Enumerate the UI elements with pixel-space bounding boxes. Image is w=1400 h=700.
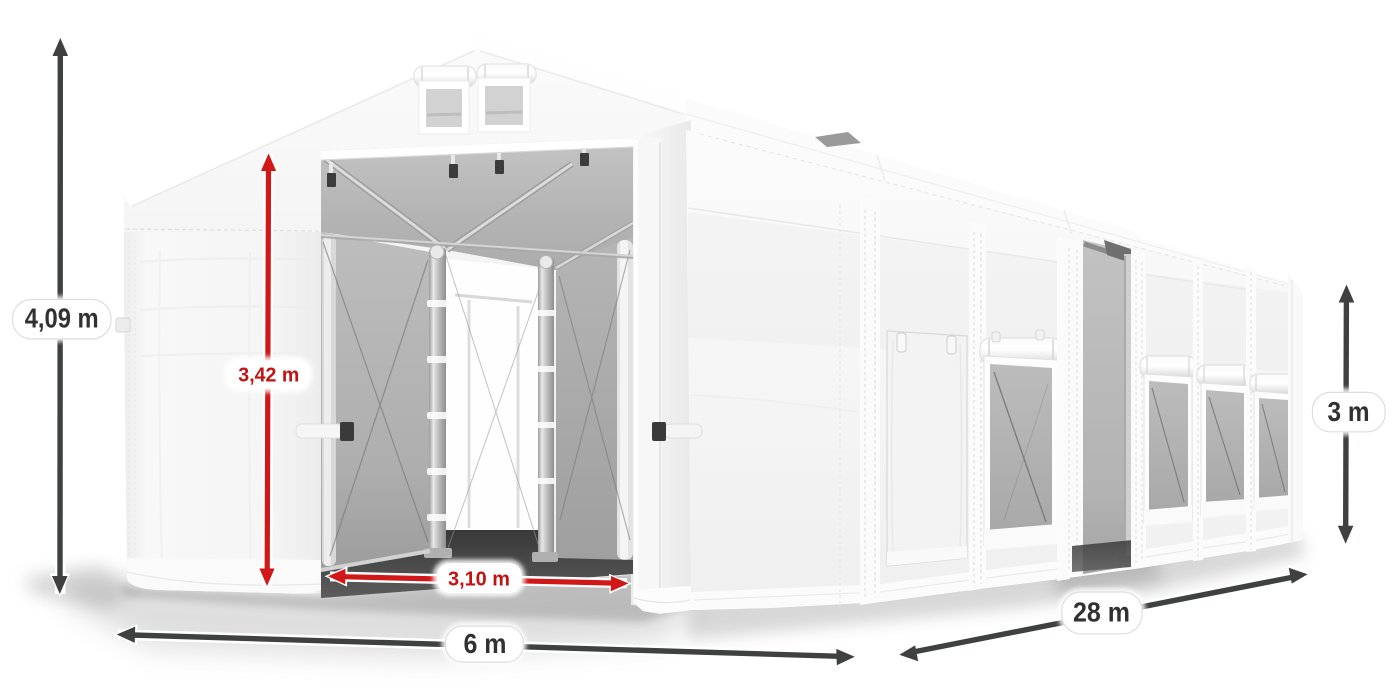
svg-text:3,10 m: 3,10 m — [448, 567, 510, 590]
svg-text:6 m: 6 m — [464, 628, 507, 659]
svg-text:3 m: 3 m — [1328, 396, 1370, 427]
svg-text:3,42 m: 3,42 m — [238, 364, 299, 387]
svg-text:28 m: 28 m — [1073, 597, 1130, 628]
svg-text:4,09 m: 4,09 m — [25, 303, 99, 334]
